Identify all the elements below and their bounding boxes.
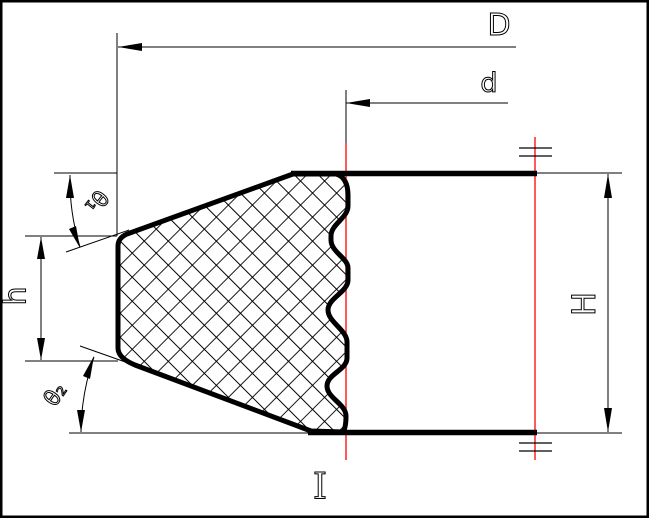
label-D: D xyxy=(487,8,510,43)
label-h: h xyxy=(0,286,34,305)
screenshot-root: D d H h θ₁ θ₂ xyxy=(0,0,650,519)
cad-drawing-canvas: D d H h θ₁ θ₂ xyxy=(0,0,650,519)
label-section-I: I xyxy=(313,467,327,508)
label-H: H xyxy=(565,292,603,316)
label-d: d xyxy=(480,68,497,99)
